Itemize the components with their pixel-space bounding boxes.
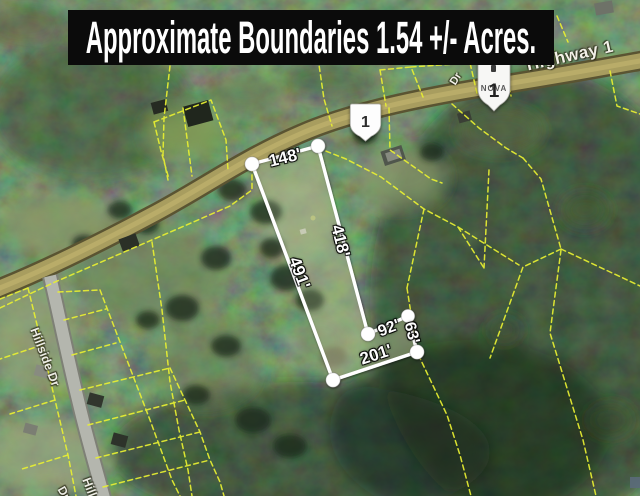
watermark-fragment [630,477,640,488]
acreage-banner: Approximate Boundaries 1.54 +/- Acres. [68,10,554,65]
vertex-se [410,345,424,359]
vertex-nw [245,157,259,171]
vertex-e [361,327,375,341]
highway-shield-number: 1 [349,103,382,143]
aerial-parcel-map: Highway 1 Dr Hillside Dr Hillside Dr Dr … [0,0,640,496]
satellite-imagery [0,0,640,496]
vertex-ne [311,139,325,153]
nova-scotia-shield-icon: NOVA 1 [477,60,511,112]
vertex-s [326,373,340,387]
acreage-banner-text: Approximate Boundaries 1.54 +/- Acres. [86,12,536,64]
nova-shield-number: 1 [477,66,511,118]
highway-shield-icon: 1 [349,103,382,143]
